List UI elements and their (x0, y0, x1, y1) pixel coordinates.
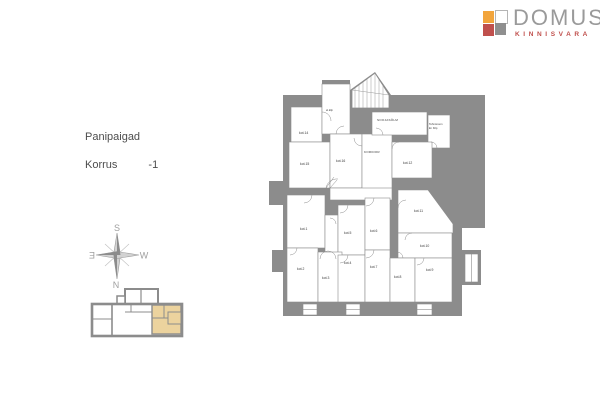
floor-label: Korrus (85, 159, 117, 171)
plan-info: Panipaigad Korrus -1 (85, 131, 158, 171)
room-label: kot.8 (394, 275, 401, 279)
room-label: kot.3 (322, 276, 329, 280)
room-label: kot.1 (300, 227, 307, 231)
company-logo: DOMUS KINNISVARA (483, 7, 600, 38)
room-kot8 (390, 258, 415, 302)
soojasolm-label: SOOJASÕLM (377, 117, 398, 122)
floor-plan: kot.1 kot.2 kot.3 kot.4 kot.5 kot.6 kot.… (266, 52, 492, 346)
logo-square-orange (483, 11, 494, 23)
koridor-label: KORIDOR (364, 150, 380, 154)
logo-window-icon (483, 10, 508, 36)
room-label: kot.7 (370, 265, 377, 269)
room-kot15 (289, 142, 330, 188)
logo-company-name: DOMUS (513, 7, 600, 29)
compass-south-label: S (114, 223, 120, 233)
floor-value: -1 (148, 159, 158, 171)
room-kot14 (291, 107, 322, 142)
compass-east-label: Ǝ (89, 251, 95, 261)
plan-title: Panipaigad (85, 131, 158, 143)
vestibule (325, 215, 338, 255)
logo-text: DOMUS KINNISVARA (513, 7, 600, 38)
room-label: kot.4 (344, 261, 351, 265)
el-kilp-label: el.kilp (326, 108, 333, 112)
room-kot2 (287, 248, 318, 302)
room-kot9 (415, 258, 452, 302)
building-overview-map (86, 284, 198, 356)
room-label: kot.11 (414, 209, 423, 213)
overview-highlighted-room (168, 312, 181, 324)
logo-company-subtitle: KINNISVARA (513, 31, 600, 38)
flyer-page: DOMUS KINNISVARA Panipaigad Korrus -1 S … (0, 0, 600, 400)
logo-square-gray (495, 23, 506, 35)
room-label: kot.12 (403, 161, 412, 165)
tehnoruum-label-line2: El. Kilp (429, 126, 438, 130)
room-label: kot.14 (299, 131, 308, 135)
compass-rose: S Ǝ W N (86, 218, 158, 294)
room-label: kot.16 (336, 159, 345, 163)
room-label: kot.5 (344, 231, 351, 235)
floor-row: Korrus -1 (85, 159, 158, 171)
logo-square-outline (495, 10, 508, 24)
room-label: kot.15 (300, 162, 309, 166)
room-label: kot.6 (370, 229, 377, 233)
room-soojasolm (372, 112, 427, 135)
room-label: kot.10 (420, 244, 429, 248)
tehnoruum-label-line1: Tehnoruum (429, 122, 443, 126)
compass-west-label: W (140, 251, 149, 261)
logo-square-red (483, 24, 494, 36)
room-kot4 (338, 255, 365, 302)
room-label: kot.9 (426, 268, 433, 272)
room-kot12 (392, 142, 432, 178)
room-kot16 (330, 134, 362, 188)
room-label: kot.2 (297, 267, 304, 271)
